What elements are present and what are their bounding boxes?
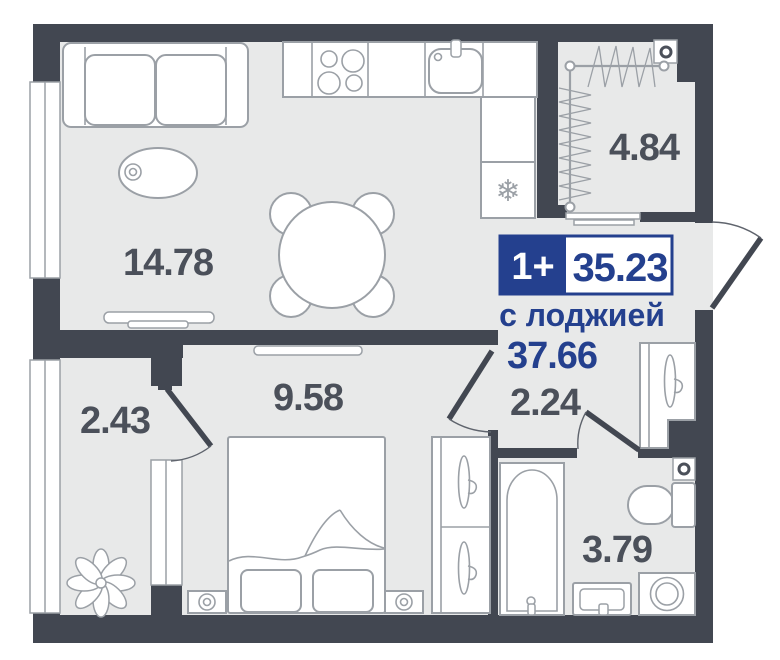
with-loggia-label: с лоджией bbox=[499, 297, 665, 333]
room-label-bath: 3.79 bbox=[582, 529, 652, 571]
wall-partition-low bbox=[151, 585, 182, 615]
kitchen-counter bbox=[283, 42, 537, 97]
wardrobe-bedroom bbox=[432, 437, 490, 613]
wall-left-upper bbox=[33, 24, 60, 84]
rack-end bbox=[660, 62, 669, 71]
plant-icon bbox=[67, 549, 135, 617]
bathroom-sink bbox=[573, 583, 631, 615]
badge-type-label: 1+ bbox=[511, 246, 554, 288]
threshold-inner bbox=[574, 220, 634, 225]
rack-end bbox=[566, 62, 575, 71]
tv-screen bbox=[128, 321, 188, 328]
room-label-living: 14.78 bbox=[123, 242, 213, 284]
loggia-threshold bbox=[566, 213, 640, 225]
dining-table bbox=[279, 202, 385, 308]
washing-machine bbox=[639, 573, 695, 615]
coffee-table bbox=[119, 148, 197, 198]
wall-partition-stub bbox=[151, 358, 182, 386]
door-leaf-entry bbox=[712, 238, 761, 308]
area-badge: 1+ 35.23 bbox=[500, 236, 672, 294]
washer-body bbox=[639, 573, 695, 615]
room-label-loggia: 2.43 bbox=[80, 400, 150, 442]
wall-bath-top-right bbox=[638, 448, 695, 458]
wall-kitchen-loggia-cap bbox=[537, 205, 567, 218]
kitchen-counter-column bbox=[481, 97, 535, 162]
coffee-table-top bbox=[119, 148, 197, 198]
sofa-cushion-left bbox=[85, 55, 155, 125]
sink-faucet bbox=[451, 40, 461, 57]
badge-area-value: 35.23 bbox=[572, 246, 667, 290]
wall-right-lower bbox=[695, 310, 713, 643]
vent-circle-icon bbox=[679, 464, 689, 474]
wall-top bbox=[33, 24, 713, 42]
dining-set bbox=[270, 193, 394, 317]
with-loggia-area: 37.66 bbox=[507, 335, 597, 377]
wall-loggia-corner bbox=[677, 24, 713, 82]
snowflake-icon: ❄ bbox=[495, 174, 520, 209]
plant-center bbox=[96, 578, 106, 588]
room-label-hall: 2.24 bbox=[510, 382, 581, 424]
vent-circle-icon bbox=[661, 47, 671, 57]
wall-bottom bbox=[33, 615, 713, 643]
floorplan-svg: ❄ bbox=[0, 0, 780, 660]
pillow bbox=[313, 570, 373, 612]
fridge: ❄ bbox=[481, 162, 535, 218]
wall-bedroom-top bbox=[183, 330, 498, 345]
wall-kitchen-loggia bbox=[537, 42, 558, 218]
bed bbox=[228, 437, 385, 613]
sofa-cushion-right bbox=[156, 55, 226, 125]
door-arc-entry bbox=[712, 222, 761, 238]
toilet-bowl bbox=[628, 486, 674, 524]
threshold-outer bbox=[566, 213, 640, 219]
rack-end bbox=[566, 203, 575, 212]
sink-faucet bbox=[599, 604, 608, 615]
wall-bath-top-left bbox=[493, 448, 577, 458]
bathtub bbox=[500, 463, 564, 615]
wall-living-loggia2 bbox=[33, 330, 183, 358]
toilet bbox=[628, 483, 695, 527]
bathtub-faucet bbox=[528, 604, 535, 615]
pillow bbox=[241, 570, 301, 612]
floorplan-stage: ❄ bbox=[0, 0, 780, 660]
tv-console-bedroom bbox=[254, 346, 362, 355]
sofa bbox=[63, 43, 248, 127]
room-label-bedroom: 9.58 bbox=[273, 377, 343, 419]
toilet-tank bbox=[672, 483, 695, 527]
wall-shaft bbox=[668, 420, 695, 448]
wall-loggia-bottom bbox=[640, 212, 713, 222]
room-label-drying: 4.84 bbox=[609, 127, 680, 169]
